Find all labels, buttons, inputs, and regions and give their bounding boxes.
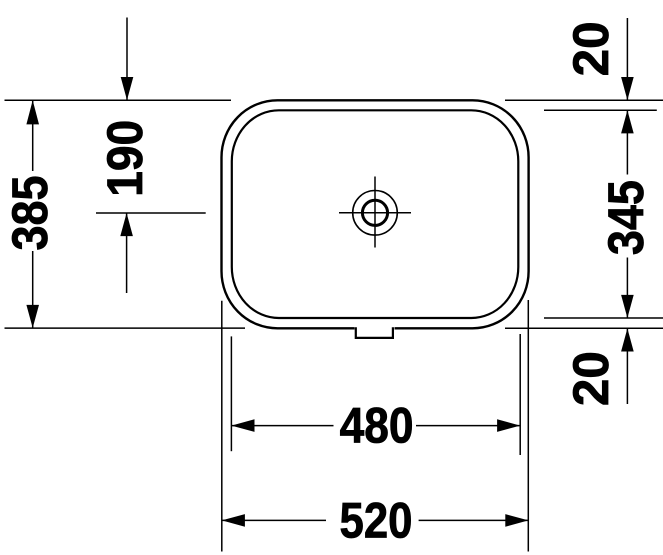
svg-text:480: 480 xyxy=(340,398,414,454)
svg-text:20: 20 xyxy=(563,351,619,406)
svg-text:20: 20 xyxy=(563,21,619,76)
svg-text:190: 190 xyxy=(97,120,153,197)
svg-text:385: 385 xyxy=(2,176,58,251)
svg-text:520: 520 xyxy=(340,493,413,549)
svg-text:345: 345 xyxy=(598,180,654,255)
